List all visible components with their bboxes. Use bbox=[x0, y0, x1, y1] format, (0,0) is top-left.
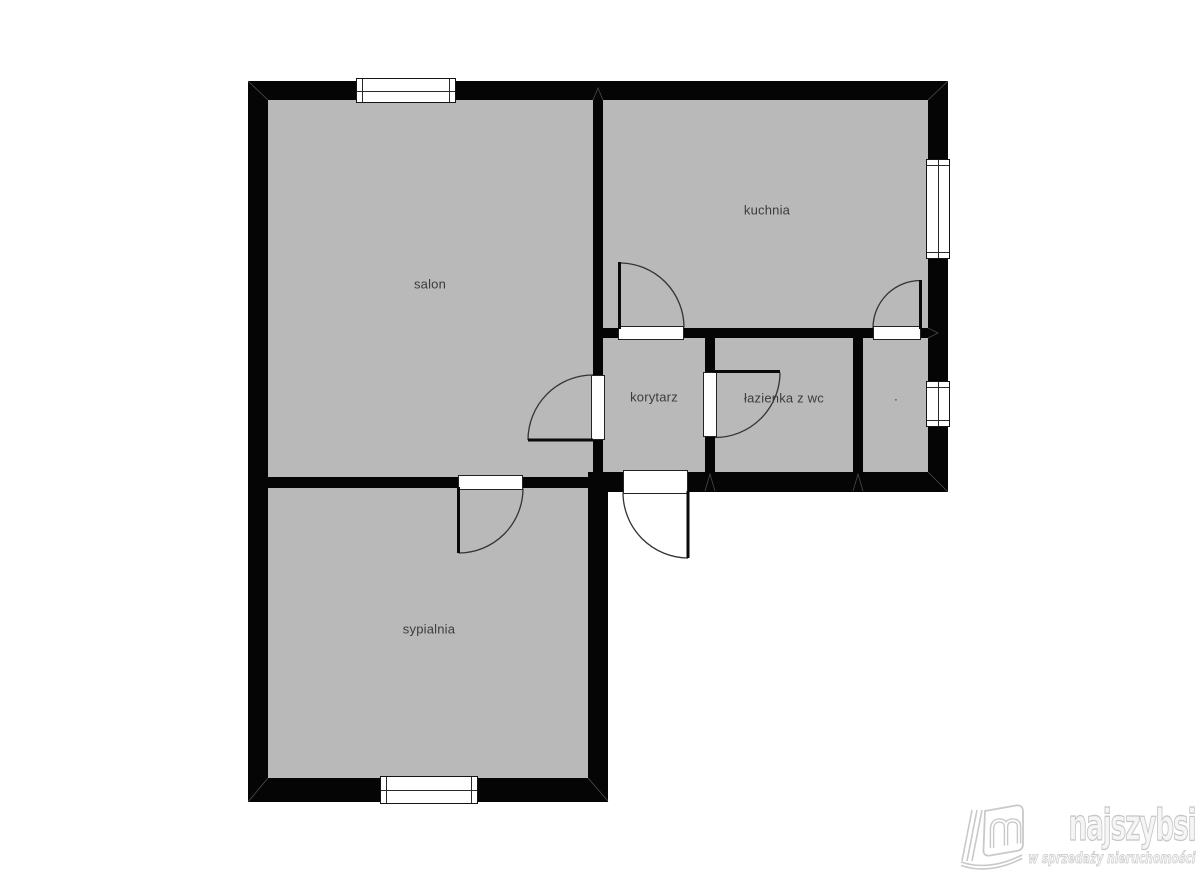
door-opening-kuchnia-pokoj bbox=[873, 326, 921, 340]
window-kuchnia-right bbox=[926, 159, 950, 259]
room-label-korytarz: korytarz bbox=[630, 390, 678, 405]
window-salon-top bbox=[356, 78, 456, 103]
floor-plan: salon kuchnia korytarz łazienka z wc . s… bbox=[0, 0, 1200, 878]
room-floor-pokoj-dot bbox=[863, 338, 928, 472]
room-label-sypialnia: sypialnia bbox=[403, 622, 455, 637]
wall-sypialnia-right bbox=[588, 472, 608, 802]
brand-watermark: najszybsi w sprzedaży nieruchomości bbox=[955, 798, 1195, 876]
window-pokoj-right bbox=[926, 381, 950, 427]
window-sypialnia-bottom bbox=[380, 776, 478, 804]
wall-salon-sypialnia bbox=[248, 477, 608, 488]
door-arc bbox=[623, 493, 688, 559]
wall-left bbox=[248, 81, 268, 802]
room-label-pokoj-dot: . bbox=[894, 389, 898, 404]
room-label-salon: salon bbox=[414, 277, 446, 292]
brand-tagline: w sprzedaży nieruchomości bbox=[1028, 851, 1195, 866]
room-label-kuchnia: kuchnia bbox=[744, 203, 790, 218]
door-opening-salon-korytarz bbox=[591, 375, 605, 440]
room-label-lazienka: łazienka z wc bbox=[744, 391, 824, 406]
door-opening-entrance bbox=[623, 470, 688, 494]
door-opening-kuchnia-korytarz bbox=[618, 326, 684, 340]
door-opening-salon-sypialnia bbox=[458, 475, 523, 490]
brand-name: najszybsi bbox=[1068, 804, 1195, 848]
door-opening-korytarz-lazienka bbox=[703, 372, 717, 437]
wall-right bbox=[928, 81, 948, 492]
wall-lazienka-pokoj bbox=[853, 338, 863, 472]
room-floor-korytarz bbox=[603, 338, 705, 472]
